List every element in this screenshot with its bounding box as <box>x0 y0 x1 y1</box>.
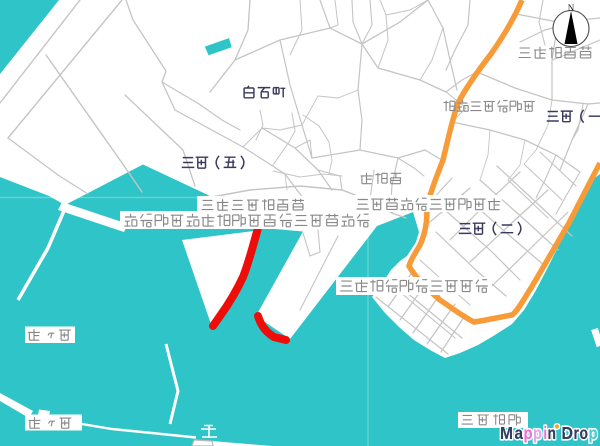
svg-text:M: M <box>500 423 513 443</box>
svg-text:p: p <box>524 423 533 443</box>
svg-text:o: o <box>580 423 589 443</box>
svg-text:p: p <box>589 423 598 443</box>
svg-text:a: a <box>515 423 524 443</box>
svg-text:N: N <box>568 3 575 13</box>
svg-text:i: i <box>544 423 548 443</box>
svg-text:D: D <box>562 423 574 443</box>
svg-text:p: p <box>533 423 542 443</box>
svg-text:r: r <box>574 423 580 443</box>
